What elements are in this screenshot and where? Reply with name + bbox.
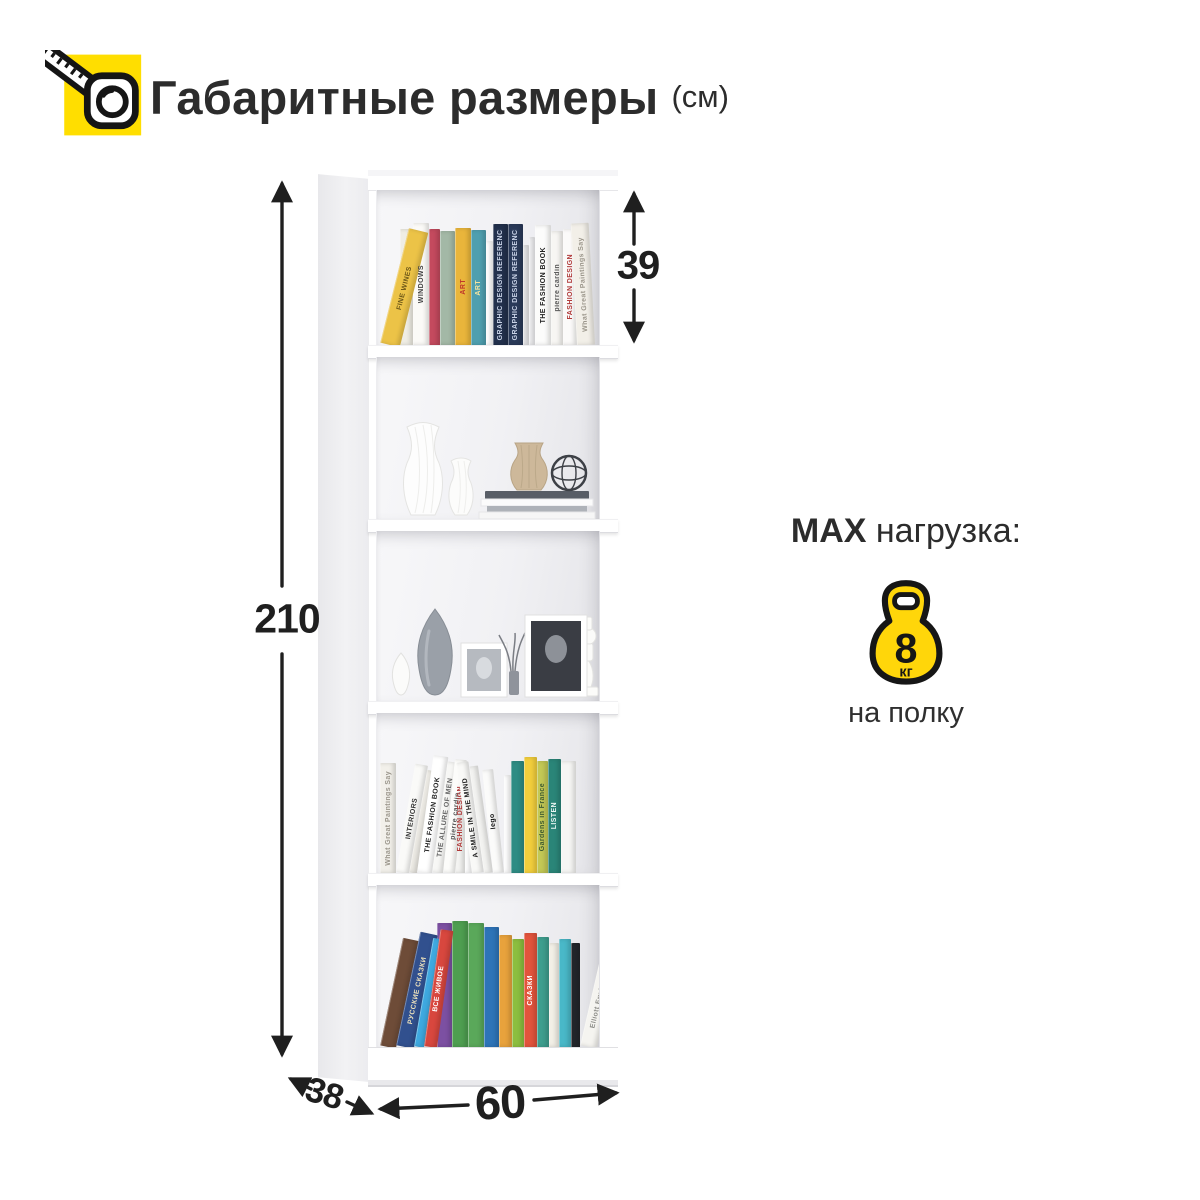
max-load-label: нагрузка: bbox=[876, 512, 1021, 550]
shelf-5-books: РУССКИЕ СКАЗКИВСЁ ЖИВОЕСКАЗКИElliott Erw… bbox=[377, 885, 599, 1047]
book-spine bbox=[429, 229, 440, 345]
kettlebell-icon: 8 кг bbox=[862, 577, 950, 686]
book-spine: Gardens in France bbox=[537, 761, 548, 873]
pleated-vase bbox=[511, 443, 548, 490]
book-spine: GRAPHIC DESIGN REFERENCED bbox=[493, 224, 508, 345]
book-spine-label: pierre cardin bbox=[554, 264, 561, 312]
shelf-3-compartment bbox=[376, 531, 600, 701]
height-dimension-label: 210 bbox=[254, 596, 319, 643]
book-spine bbox=[468, 923, 484, 1047]
max-load-title: MAX нагрузка: bbox=[758, 512, 1054, 551]
page-title: Габаритные размеры bbox=[150, 70, 658, 125]
book-spine-label: ART bbox=[475, 280, 482, 296]
drop-vase bbox=[392, 653, 409, 695]
book-spine-label: GRAPHIC DESIGN REFERENCED bbox=[512, 229, 519, 340]
book-spine bbox=[499, 935, 512, 1047]
book-spine-label: lego bbox=[489, 813, 498, 830]
book-spine bbox=[452, 921, 468, 1047]
shelf-1-compartment: FINE WINESWINDOWSARTARTGRAPHIC DESIGN RE… bbox=[376, 190, 600, 345]
book-spine-label: Elliott Erwitt Snaps bbox=[589, 958, 599, 1030]
book-spine bbox=[512, 939, 524, 1047]
book-spine-label: СКАЗКИ bbox=[527, 975, 534, 1005]
book-spine: ART bbox=[471, 230, 486, 345]
shelf-1-books: FINE WINESWINDOWSARTARTGRAPHIC DESIGN RE… bbox=[377, 190, 599, 345]
width-dimension-label: 60 bbox=[473, 1073, 526, 1131]
book-spine-label: ART bbox=[460, 279, 467, 295]
bookcase-side-panel bbox=[318, 170, 368, 1086]
teardrop-vase bbox=[418, 609, 452, 695]
bookcase-front: FINE WINESWINDOWSARTARTGRAPHIC DESIGN RE… bbox=[368, 176, 618, 1086]
bookcase-top-board bbox=[368, 176, 618, 191]
book-spine: LISTEN bbox=[548, 759, 561, 873]
shelf-4-compartment: What Great Paintings SayINTERIORSTHE FAS… bbox=[376, 713, 600, 873]
photo-frame-small bbox=[461, 643, 507, 697]
max-load-unit: кг bbox=[899, 664, 912, 680]
book-spine: СКАЗКИ bbox=[524, 933, 537, 1047]
book-spine bbox=[504, 775, 511, 873]
book-spine-label: LISTEN bbox=[551, 802, 558, 829]
book-spine bbox=[484, 927, 499, 1047]
dimensions-infographic: Габаритные размеры (см) FINE WINESWINDOW… bbox=[0, 0, 1200, 1200]
ribbed-vase-tall bbox=[404, 423, 443, 516]
book-spine bbox=[511, 761, 524, 873]
book-spine bbox=[537, 937, 549, 1047]
book-spine bbox=[559, 939, 571, 1047]
bookcase: FINE WINESWINDOWSARTARTGRAPHIC DESIGN RE… bbox=[318, 170, 618, 1086]
book-spine-label: What Great Paintings Say bbox=[577, 237, 589, 332]
shelf-2-decor bbox=[377, 357, 599, 519]
max-load-prefix: MAX bbox=[791, 512, 867, 550]
book-spine: THE FASHION BOOK bbox=[535, 225, 551, 345]
tape-measure-icon bbox=[45, 50, 145, 140]
book-spine-label: GRAPHIC DESIGN REFERENCED bbox=[497, 229, 504, 340]
book-spine: GRAPHIC DESIGN REFERENCED bbox=[508, 224, 523, 345]
book-spine-label: What Great Paintings Say bbox=[385, 771, 392, 866]
unit-label: (см) bbox=[671, 79, 728, 115]
header: Габаритные размеры (см) bbox=[150, 68, 729, 126]
book-stack bbox=[479, 491, 595, 519]
book-spine bbox=[561, 761, 576, 873]
book-spine: ART bbox=[455, 228, 471, 345]
shelf-4-books: What Great Paintings SayINTERIORSTHE FAS… bbox=[377, 713, 599, 873]
book-spine bbox=[486, 241, 493, 345]
book-spine-label: WINDOWS bbox=[418, 265, 425, 303]
photo-frame-large bbox=[525, 615, 587, 697]
book-spine bbox=[440, 231, 455, 345]
max-load-per-shelf: на полку bbox=[758, 697, 1054, 730]
shelf-3-decor bbox=[377, 531, 599, 701]
book-spine-label: THE FASHION BOOK bbox=[540, 247, 547, 323]
book-spine: Elliott Erwitt Snaps bbox=[580, 938, 599, 1047]
book-spine-label: Gardens in France bbox=[539, 783, 546, 851]
book-spine-label: FINE WINES bbox=[395, 265, 413, 310]
shelf-height-dimension-label: 39 bbox=[617, 244, 660, 289]
book-spine: What Great Paintings Say bbox=[380, 763, 396, 873]
book-spine bbox=[549, 943, 559, 1047]
max-load-block: MAX нагрузка: 8 кг на полку bbox=[758, 512, 1054, 730]
book-spine bbox=[524, 757, 537, 873]
wire-sphere bbox=[552, 456, 586, 490]
shelf-2-compartment bbox=[376, 357, 600, 519]
book-spine bbox=[571, 943, 580, 1047]
shelf-5-compartment: РУССКИЕ СКАЗКИВСЁ ЖИВОЕСКАЗКИElliott Erw… bbox=[376, 885, 600, 1047]
ribbed-vase-small bbox=[449, 458, 473, 515]
book-spine: pierre cardin bbox=[551, 231, 563, 345]
